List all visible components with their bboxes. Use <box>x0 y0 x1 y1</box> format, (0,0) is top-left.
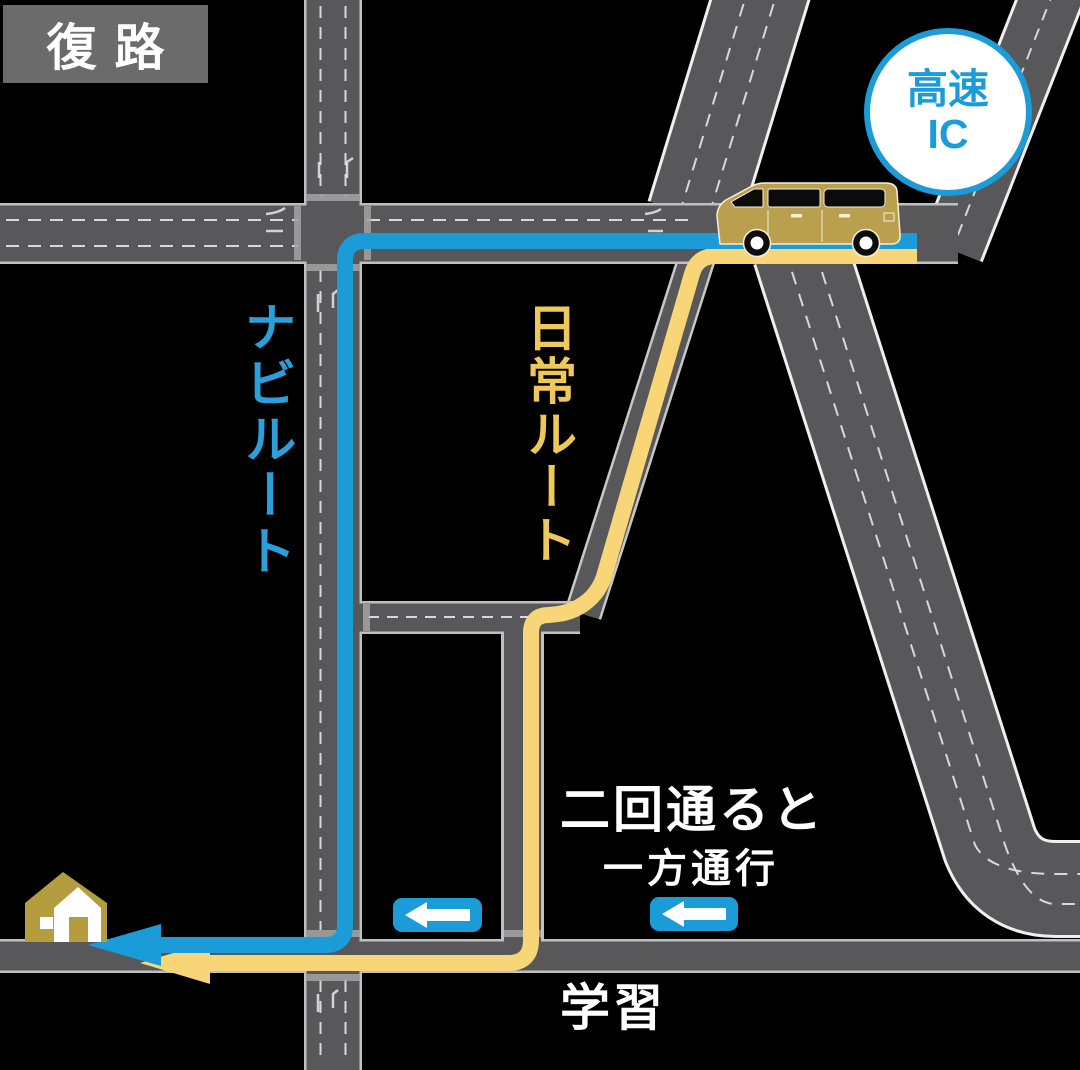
ic-badge-line1: 高速 <box>907 67 989 112</box>
learning-annotation-line1: 二回通ると <box>560 777 825 843</box>
one-way-label: 一方通行 <box>603 836 779 894</box>
navi-route-label: ナビルート <box>228 300 303 600</box>
learning-annotation-line2: 学習 <box>560 975 825 1041</box>
return-trip-badge: 復路 <box>3 5 208 83</box>
house-icon <box>25 872 107 942</box>
daily-route-label: 日常ルート <box>512 302 584 597</box>
highway-ic-badge: 高速 IC <box>864 28 1032 196</box>
ic-badge-line2: IC <box>928 112 969 157</box>
route-map: 復路 高速 IC ナビルート 日常ルート 二回通ると 学習 一方通行 <box>0 0 1080 1070</box>
one-way-sign-1 <box>393 898 482 932</box>
